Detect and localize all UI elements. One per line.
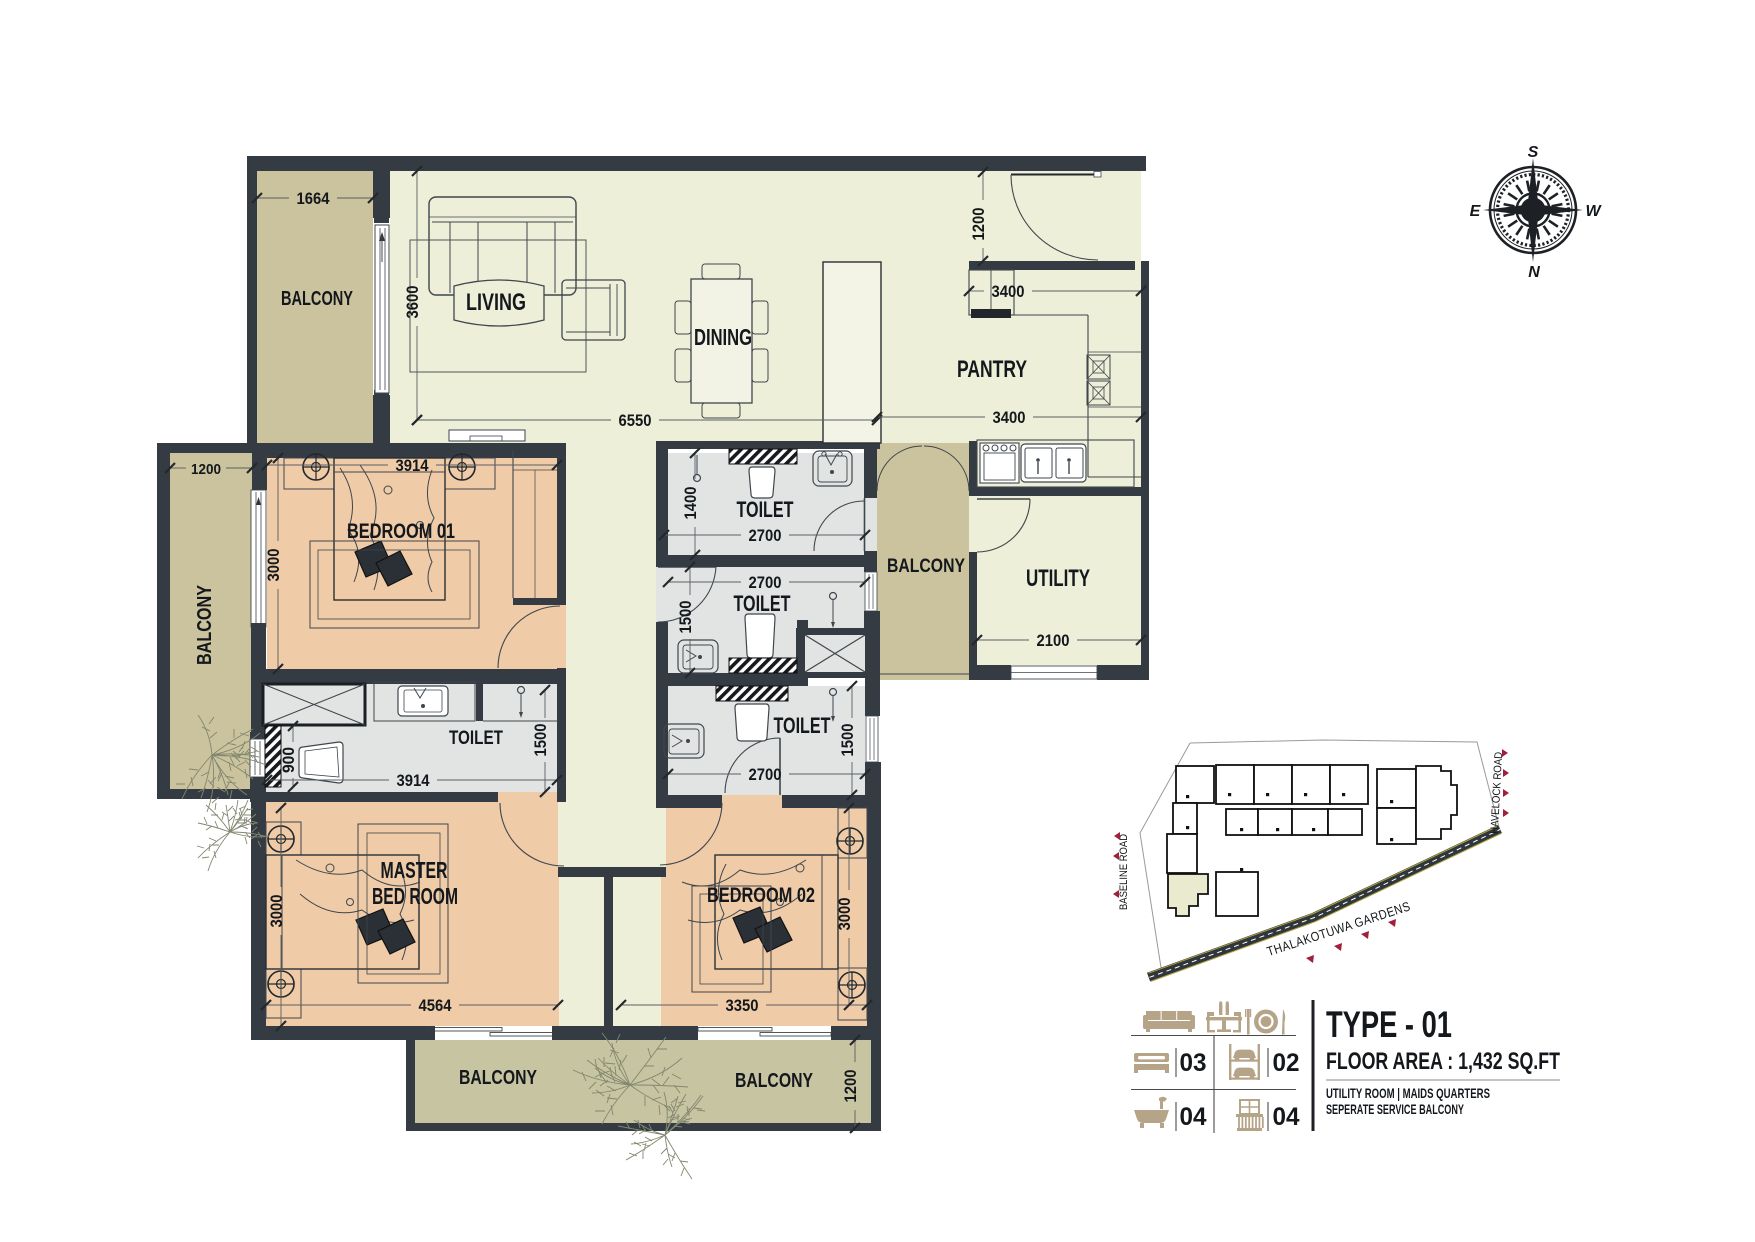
svg-text:UTILITY ROOM | MAIDS QUARTERS: UTILITY ROOM | MAIDS QUARTERS <box>1326 1085 1490 1101</box>
svg-text:MASTER: MASTER <box>381 857 448 883</box>
svg-text:LIVING: LIVING <box>466 289 526 316</box>
svg-text:S: S <box>1528 144 1539 161</box>
svg-text:BALCONY: BALCONY <box>281 288 353 310</box>
svg-text:BEDROOM 02: BEDROOM 02 <box>707 884 815 907</box>
svg-text:02: 02 <box>1273 1049 1300 1077</box>
svg-text:03: 03 <box>1180 1049 1207 1077</box>
svg-text:1200: 1200 <box>191 461 221 478</box>
svg-text:TOILET: TOILET <box>774 713 831 738</box>
svg-text:E: E <box>1470 203 1482 220</box>
svg-text:SEPERATE SERVICE BALCONY: SEPERATE SERVICE BALCONY <box>1326 1101 1464 1117</box>
svg-text:2700: 2700 <box>749 573 782 592</box>
svg-text:2700: 2700 <box>749 765 782 784</box>
svg-text:3000: 3000 <box>835 898 854 931</box>
svg-text:FLOOR AREA : 1,432 SQ.FT: FLOOR AREA : 1,432 SQ.FT <box>1326 1048 1560 1075</box>
svg-text:3600: 3600 <box>403 286 422 319</box>
svg-text:2100: 2100 <box>1037 631 1070 650</box>
svg-text:3000: 3000 <box>267 895 286 928</box>
svg-text:TOILET: TOILET <box>734 591 791 616</box>
svg-text:04: 04 <box>1273 1103 1300 1131</box>
svg-text:PANTRY: PANTRY <box>957 356 1027 383</box>
svg-text:N: N <box>1528 264 1540 281</box>
svg-text:BASELINE ROAD: BASELINE ROAD <box>1118 834 1130 910</box>
svg-text:04: 04 <box>1180 1103 1207 1131</box>
svg-text:UTILITY: UTILITY <box>1026 565 1090 592</box>
svg-text:TOILET: TOILET <box>737 497 794 522</box>
svg-text:6550: 6550 <box>619 411 652 430</box>
svg-text:3914: 3914 <box>397 771 430 790</box>
svg-text:BALCONY: BALCONY <box>887 556 965 577</box>
svg-text:3914: 3914 <box>396 456 429 475</box>
svg-text:BED ROOM: BED ROOM <box>372 883 458 909</box>
svg-text:DINING: DINING <box>694 324 752 350</box>
svg-text:BALCONY: BALCONY <box>735 1070 814 1092</box>
svg-text:4564: 4564 <box>419 996 452 1015</box>
svg-text:1500: 1500 <box>676 601 695 634</box>
svg-text:1400: 1400 <box>681 487 700 520</box>
svg-text:TYPE - 01: TYPE - 01 <box>1326 1004 1452 1045</box>
svg-text:3400: 3400 <box>993 408 1026 427</box>
svg-text:BALCONY: BALCONY <box>459 1067 538 1089</box>
svg-text:3350: 3350 <box>726 996 759 1015</box>
svg-text:1200: 1200 <box>841 1070 860 1103</box>
svg-text:900: 900 <box>279 747 298 773</box>
svg-text:1664: 1664 <box>297 189 330 208</box>
svg-text:TOILET: TOILET <box>449 728 503 749</box>
svg-text:W: W <box>1585 203 1602 220</box>
svg-text:3400: 3400 <box>992 282 1025 301</box>
svg-text:3000: 3000 <box>264 549 283 582</box>
svg-text:1500: 1500 <box>531 724 550 757</box>
svg-text:1200: 1200 <box>969 208 988 241</box>
svg-text:BALCONY: BALCONY <box>194 584 216 665</box>
svg-text:2700: 2700 <box>749 526 782 545</box>
svg-text:1500: 1500 <box>838 724 857 757</box>
svg-text:BEDROOM 01: BEDROOM 01 <box>347 520 455 543</box>
